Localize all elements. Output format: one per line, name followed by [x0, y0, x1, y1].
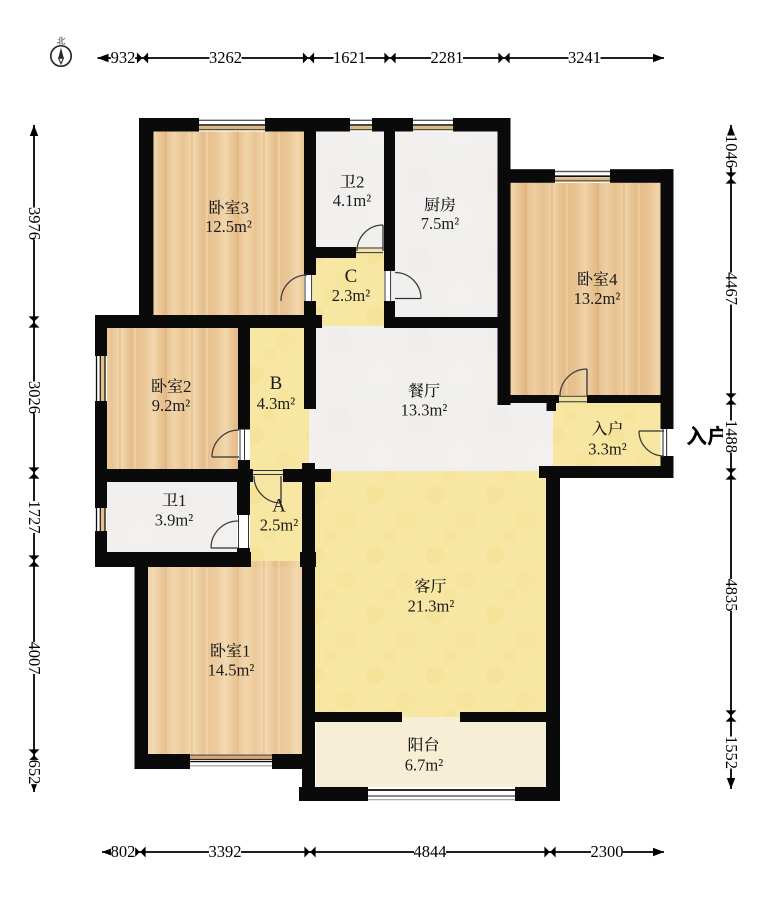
svg-text:1621: 1621 — [333, 48, 366, 67]
svg-text:1: 1 — [178, 491, 187, 510]
svg-text:9.2m²: 9.2m² — [152, 396, 190, 415]
svg-text:4467: 4467 — [722, 272, 741, 305]
svg-text:802: 802 — [111, 842, 136, 861]
svg-text:2.5m²: 2.5m² — [260, 516, 298, 535]
svg-text:2: 2 — [356, 173, 365, 192]
svg-text:13.2m²: 13.2m² — [574, 289, 621, 308]
svg-text:3262: 3262 — [209, 48, 242, 67]
svg-text:13.3m²: 13.3m² — [401, 400, 448, 419]
svg-text:3241: 3241 — [568, 48, 601, 67]
svg-text:1046: 1046 — [722, 135, 741, 168]
svg-text:3026: 3026 — [25, 381, 44, 414]
svg-text:C: C — [345, 266, 358, 287]
svg-text:3976: 3976 — [25, 207, 44, 240]
svg-text:3: 3 — [241, 199, 250, 218]
svg-text:4.1m²: 4.1m² — [333, 191, 371, 210]
svg-text:3.3m²: 3.3m² — [588, 439, 626, 458]
svg-text:6.7m²: 6.7m² — [405, 756, 443, 775]
svg-text:4.3m²: 4.3m² — [257, 394, 295, 413]
svg-text:4: 4 — [609, 270, 618, 289]
svg-text:1727: 1727 — [25, 501, 44, 534]
svg-text:4844: 4844 — [414, 842, 447, 861]
svg-text:3.9m²: 3.9m² — [155, 511, 193, 530]
svg-text:7.5m²: 7.5m² — [421, 214, 459, 233]
svg-text:1: 1 — [242, 642, 251, 661]
svg-text:4007: 4007 — [25, 642, 44, 675]
svg-text:12.5m²: 12.5m² — [205, 217, 252, 236]
svg-text:1488: 1488 — [722, 420, 741, 453]
svg-text:2: 2 — [183, 377, 192, 396]
svg-text:4835: 4835 — [722, 579, 741, 612]
svg-text:932: 932 — [111, 48, 136, 67]
svg-text:1552: 1552 — [722, 736, 741, 769]
svg-text:2281: 2281 — [431, 48, 464, 67]
svg-text:21.3m²: 21.3m² — [408, 597, 455, 616]
svg-text:2.3m²: 2.3m² — [332, 286, 370, 305]
svg-text:B: B — [270, 373, 283, 394]
svg-text:14.5m²: 14.5m² — [208, 661, 255, 680]
svg-text:652: 652 — [25, 760, 44, 785]
svg-text:3392: 3392 — [209, 842, 242, 861]
svg-text:2300: 2300 — [591, 842, 624, 861]
svg-text:A: A — [272, 496, 286, 517]
